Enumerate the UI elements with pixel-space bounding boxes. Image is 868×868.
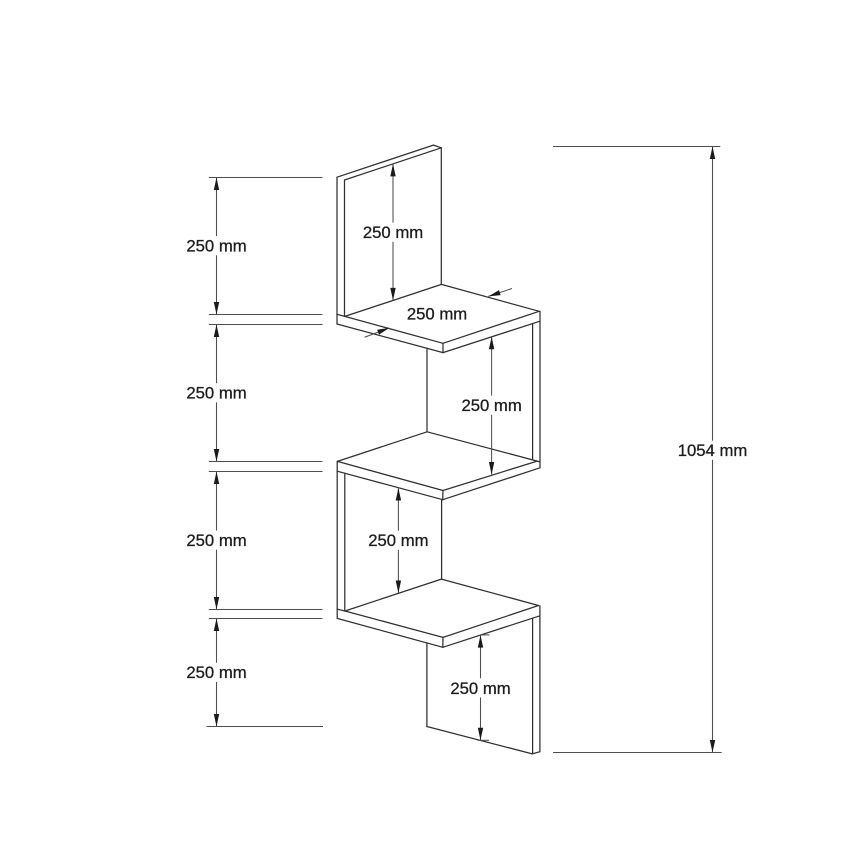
svg-text:250 mm: 250 mm — [368, 531, 428, 550]
svg-text:250 mm: 250 mm — [186, 663, 246, 682]
svg-text:250 mm: 250 mm — [461, 396, 521, 415]
svg-text:250 mm: 250 mm — [363, 223, 423, 242]
svg-text:1054 mm: 1054 mm — [678, 441, 748, 460]
svg-text:250 mm: 250 mm — [450, 679, 510, 698]
svg-text:250 mm: 250 mm — [407, 305, 467, 324]
svg-text:250 mm: 250 mm — [186, 237, 246, 256]
svg-text:250 mm: 250 mm — [186, 384, 246, 403]
svg-text:250 mm: 250 mm — [186, 531, 246, 550]
